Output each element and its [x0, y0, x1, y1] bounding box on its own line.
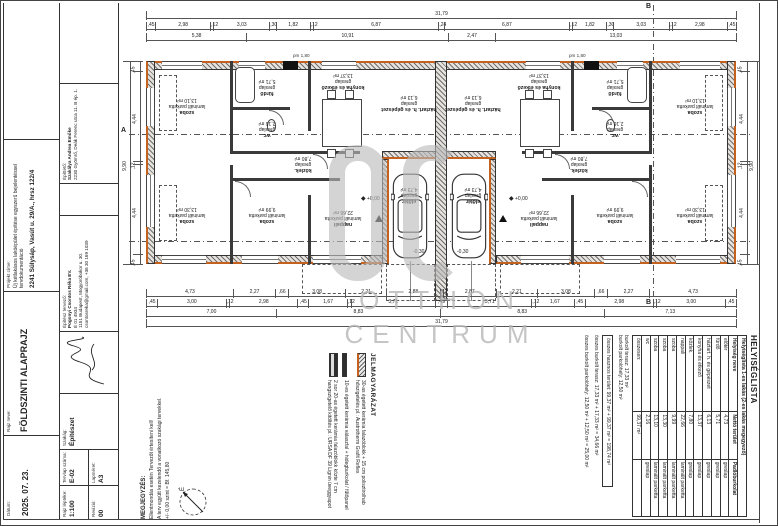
chair: [345, 149, 354, 158]
empty-cell: [60, 3, 118, 83]
chair: [345, 90, 354, 99]
north-arrow-icon: É: [176, 485, 210, 519]
drawing-name-label: Rajz neve:: [6, 295, 11, 432]
partition-wall: [230, 178, 340, 181]
chair: [327, 90, 336, 99]
partition-wall: [649, 61, 652, 151]
partition-wall: [571, 61, 574, 131]
room-label: háztart. h. és gépészetgreslap6,13 m²: [445, 94, 500, 112]
discipline-cell: Szakág: Építészet: [60, 393, 118, 449]
wall10-swatch-icon: [343, 353, 348, 377]
chair: [525, 90, 534, 99]
room-label: fürdőgreslap5,71 m²: [607, 78, 624, 96]
room-label: konyha és étkezőgreslap13,37 m²: [518, 72, 561, 90]
window: [322, 61, 356, 70]
extra-area-line: burkolt terasz: 17,33 m²: [623, 335, 630, 519]
entry-door: [584, 61, 599, 70]
carport-wall: [382, 159, 389, 264]
window: [162, 61, 202, 70]
level-marker-icon: ◆: [509, 196, 514, 202]
table-row: fürdő5,71greslap: [711, 336, 720, 517]
table-row: szoba9,99laminált parketta: [668, 336, 677, 517]
room-list-block: HELYISÉGLISTA Helyiséglista 1-es lakás (…: [502, 335, 758, 519]
date-cell: Dátum: 2025. 07. 23.: [4, 435, 59, 519]
project-label: Projekt címe:: [6, 143, 11, 288]
chair: [543, 149, 552, 158]
dining-table: [322, 99, 362, 147]
partition-wall: [308, 61, 311, 131]
title-block: Dátum: 2025. 07. 23. Rajz neve: FÖLDSZIN…: [3, 3, 119, 519]
terrace-door: [521, 255, 569, 264]
room-list-subtitle: Helyiséglista 1-es lakás (2-es lakás meg…: [738, 336, 747, 517]
room-label: háztart. h. és gépészetgreslap6,13 m²: [381, 94, 436, 112]
room-label: wcgreslap2,16 m²: [259, 120, 276, 138]
car-icon: [391, 171, 429, 261]
sheet-number-cell: Tervlap száma: E-02: [60, 450, 89, 485]
notes-block: MEGJEGYZÉS: Ellentmondás esetén Tervezőt…: [141, 355, 251, 519]
window: [604, 255, 640, 264]
room-label: előtérgreslap4,73 m²: [465, 186, 482, 204]
table-row: közlek.7,80greslap: [685, 336, 694, 517]
car-icon: [450, 171, 488, 261]
empty-cell: [4, 3, 59, 139]
wall2x20-swatch-icon: [330, 353, 339, 377]
project-description: Új kétlakásos lakóépület építése egyszer…: [13, 143, 26, 288]
window: [680, 61, 720, 70]
date-value: 2025. 07. 23.: [21, 439, 30, 516]
table-row: háztart. h. és gépészet6,13greslap: [703, 336, 712, 517]
parapet-label: pm 1,80: [293, 53, 310, 58]
room-label: fürdőgreslap5,71 m²: [259, 78, 276, 96]
partition-wall: [522, 151, 652, 154]
window: [146, 175, 155, 227]
scale-label: Rajz léptéke:: [62, 488, 67, 517]
note-line: A terv együtt kezelendő a vonatkozó szak…: [157, 369, 163, 519]
window: [162, 255, 206, 264]
frame-line-bottom: [3, 519, 759, 520]
legend-block: JELMAGYARÁZAT 30-as égetett kerámia fala…: [255, 353, 376, 517]
dimension-chain: 31,79: [146, 11, 737, 20]
summary-line: összes burkolt parkolóhely: 12,50 m² + 1…: [583, 335, 590, 485]
client-cell: Építtető: Szakálya Andrea Emőke 2230 Gyö…: [60, 83, 118, 183]
legend-title: JELMAGYARÁZAT: [369, 353, 376, 517]
room-label: konyha és étkezőgreslap13,37 m²: [322, 72, 365, 90]
notes-title: MEGJEGYZÉS:: [141, 355, 147, 519]
wall30-swatch-icon: [357, 353, 366, 377]
drawing-sheet: Dátum: 2025. 07. 23. Rajz neve: FÖLDSZIN…: [0, 0, 778, 526]
dimension-chain: ,454,44,124,44,45: [133, 61, 143, 265]
room-list-extras: burkolt terasz: 17,33 m²burkolt parkolóh…: [616, 335, 629, 519]
discipline-label: Szakág:: [62, 397, 67, 446]
room-label: wcgreslap2,16 m²: [607, 120, 624, 138]
dimension-chain: ,453,00,122,98,451,67,123,71,493,71,121,…: [146, 299, 737, 308]
column-header: Nettó terület: [729, 412, 738, 459]
legend-item: 10-es égetett kerámia válaszfal + hidegb…: [343, 353, 350, 517]
chair: [543, 90, 552, 99]
level-marker-icon: ◆: [361, 196, 366, 202]
signature-icon: [62, 334, 112, 390]
scale-cell: Rajz léptéke: 1:100: [60, 485, 89, 519]
svg-text:É: É: [179, 487, 186, 491]
entry-door: [283, 61, 298, 70]
window: [727, 88, 736, 126]
table-row: konyha és étkező13,37greslap: [694, 336, 703, 517]
room-list-summary: összes hasznos terület: 99,37 m² + 99,37…: [583, 335, 614, 519]
bathtub: [627, 67, 647, 103]
client-address: 2230 Gyömrő, Deák Ferenc utca 11. B ép. …: [73, 87, 79, 180]
discipline-value: Építészet: [69, 397, 76, 446]
note-line: Ellentmondás esetén Tervezőt értesíteni …: [149, 369, 155, 519]
paper-size-label: Lapméret:: [91, 452, 96, 483]
room-label: szobalaminált parketta9,99 m²: [597, 206, 634, 224]
section-marker-b: B: [646, 3, 651, 10]
terrace-door: [313, 255, 361, 264]
architect-cell: Építész tervező: Pogonyi Csontos Réka EV…: [60, 215, 118, 331]
level-marker: ◆ +0,00: [361, 195, 380, 202]
room-label: szobalaminált parketta13,30 m²: [677, 206, 714, 224]
room-label: szobalaminált parketta13,10 m²: [677, 97, 714, 115]
drawing-name-cell: Rajz neve: FÖLDSZINTI ALAPRAJZ: [4, 291, 59, 435]
summary-line: összes hasznos terület: 99,37 m² + 99,37…: [602, 335, 614, 487]
sheet-number-label: Tervlap száma:: [62, 452, 67, 483]
level-marker: ◆ +0,00: [509, 195, 528, 202]
project-cell: Projekt címe: Új kétlakásos lakóépület é…: [4, 139, 59, 291]
dimension-chain: ,452,98,123,03,301,82,126,87,246,87,121,…: [146, 22, 737, 31]
note-line: +/- 0,00 szint = Bf. 145,80: [165, 369, 171, 519]
window: [727, 175, 736, 227]
door-swing: [632, 181, 648, 197]
total-label: összesen:: [633, 336, 642, 412]
project-address: 2241 Sülysáp, Vasút u. 29/A., hrsz 122/4: [29, 143, 37, 288]
room-label: előtérgreslap4,73 m²: [401, 186, 418, 204]
window: [146, 88, 155, 126]
partition-wall: [230, 151, 360, 154]
sheet-number-value: E-02: [69, 452, 76, 483]
legend-item: 30-as égetett kerámia falazóblokk + 15 c…: [354, 353, 367, 517]
paper-size-value: A3: [98, 452, 105, 483]
summary-line: összes burkolt terasz: 17,33 m² + 17,33 …: [592, 335, 599, 485]
chair: [525, 149, 534, 158]
window: [676, 255, 720, 264]
legend-item: 2 sor 20-as égetett kerámia falazóblokk …: [326, 353, 339, 517]
level-marker: -0,30: [413, 249, 424, 255]
room-label: közlek.greslap7,80 m²: [570, 155, 587, 173]
dimension-chain: 4,732,27,663,082,212,88,122,872,213,08,6…: [146, 289, 737, 298]
door-swing: [235, 181, 251, 197]
column-header: Helyiség neve: [729, 336, 738, 412]
room-list-table: Helyiséglista 1-es lakás (2-es lakás meg…: [632, 335, 747, 517]
floor-plan: 31,79 ,452,98,123,03,301,82,126,87,246,8…: [117, 3, 763, 335]
partition-wall: [571, 195, 574, 264]
architect-contact: csontosreka@gmail.com, +36 30 169 1039: [84, 219, 90, 328]
door-swing: [313, 154, 328, 169]
room-label: nappalilaminált parketta22,66 m²: [325, 209, 362, 227]
level-marker: -0,30: [457, 249, 468, 255]
table-row: szoba13,30laminált parketta: [659, 336, 668, 517]
room-label: szobalaminált parketta9,99 m²: [249, 206, 286, 224]
partition-wall: [308, 195, 311, 264]
scale-value: 1:100: [69, 488, 76, 517]
revision-cell: Revízió: 00: [89, 485, 118, 519]
dimension-chain: 5,3810,912,4713,03: [146, 33, 737, 42]
window: [526, 61, 560, 70]
parapet-label: pm 1,80: [569, 53, 586, 58]
spacer-cell: [60, 183, 118, 215]
dimension-chain: 31,79: [146, 319, 737, 328]
window: [242, 255, 278, 264]
date-label: Dátum:: [6, 439, 11, 516]
partition-wall: [230, 107, 290, 110]
total-value: 99,37 m²: [633, 412, 642, 459]
paper-size-cell: Lapméret: A3: [89, 450, 118, 485]
bathtub: [235, 67, 255, 103]
column-header: Padlóburkolat: [729, 459, 738, 516]
revision-value: 00: [98, 488, 105, 517]
dining-table: [520, 99, 560, 147]
extra-area-line: burkolt parkolóhely: 12,50 m²: [616, 335, 623, 519]
signature-cell: [60, 331, 118, 393]
scale-grid: Rajz léptéke: 1:100 Tervlap száma: E-02 …: [60, 449, 118, 519]
dimension-chain: 7,008,838,837,13: [146, 309, 737, 318]
chair: [327, 149, 336, 158]
partition-wall: [230, 61, 233, 151]
table-row: előtér4,73greslap: [720, 336, 729, 517]
drive-arrow-icon: [375, 215, 383, 222]
table-row: nappali22,66laminált parketta: [676, 336, 685, 517]
room-label: szobalaminált parketta13,30 m²: [169, 206, 206, 224]
table-row: wc2,16greslap: [641, 336, 650, 517]
room-label: nappalilaminált parketta22,66 m²: [521, 209, 558, 227]
revision-label: Revízió:: [91, 488, 96, 517]
room-label: közlek.greslap7,80 m²: [294, 155, 311, 173]
door-swing: [555, 154, 570, 169]
table-row: szoba13,10laminált parketta: [650, 336, 659, 517]
room-label: szobalaminált parketta13,10 m²: [169, 97, 206, 115]
dimension-chain: 9,90: [750, 61, 760, 265]
drawing-name: FÖLDSZINTI ALAPRAJZ: [19, 295, 29, 432]
drive-arrow-icon: [499, 215, 507, 222]
room-list-title: HELYISÉGLISTA: [749, 335, 758, 519]
carport-wall: [489, 159, 496, 264]
